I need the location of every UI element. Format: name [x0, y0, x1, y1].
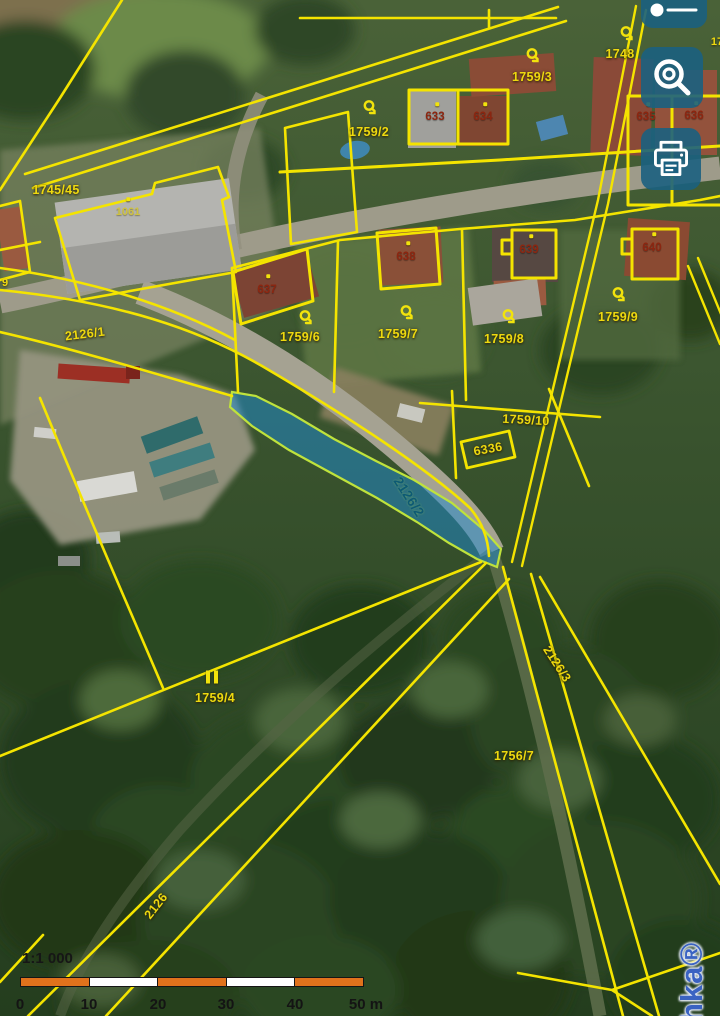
slider-icon: [641, 0, 707, 28]
scalebar-segment: [20, 977, 90, 987]
scalebar-tick: 30: [218, 996, 235, 1013]
scalebar-segment: [295, 977, 364, 987]
scalebar-tick: 50 m: [349, 996, 383, 1013]
print-button[interactable]: [641, 128, 701, 190]
scalebar-segments: [20, 977, 364, 987]
magnifier-icon: [648, 54, 696, 102]
scalebar: 1:1 000 01020304050 m: [14, 948, 414, 1014]
scalebar-tick: 20: [150, 996, 167, 1013]
printer-icon: [651, 139, 691, 179]
search-button[interactable]: [641, 47, 703, 108]
scalebar-segment: [158, 977, 227, 987]
scalebar-tick: 0: [16, 996, 24, 1013]
scalebar-tick: 40: [287, 996, 304, 1013]
scalebar-segment: [90, 977, 159, 987]
map-viewport[interactable]: 1745/451759/21759/31748171759/61759/7175…: [0, 0, 720, 1016]
scalebar-segment: [227, 977, 296, 987]
scalebar-tick: 10: [81, 996, 98, 1013]
watermark-text: hka®: [674, 942, 710, 1016]
scale-ratio: 1:1 000: [22, 950, 73, 967]
zoom-slider-button[interactable]: [641, 0, 707, 28]
aerial-imagery: [0, 0, 720, 1016]
